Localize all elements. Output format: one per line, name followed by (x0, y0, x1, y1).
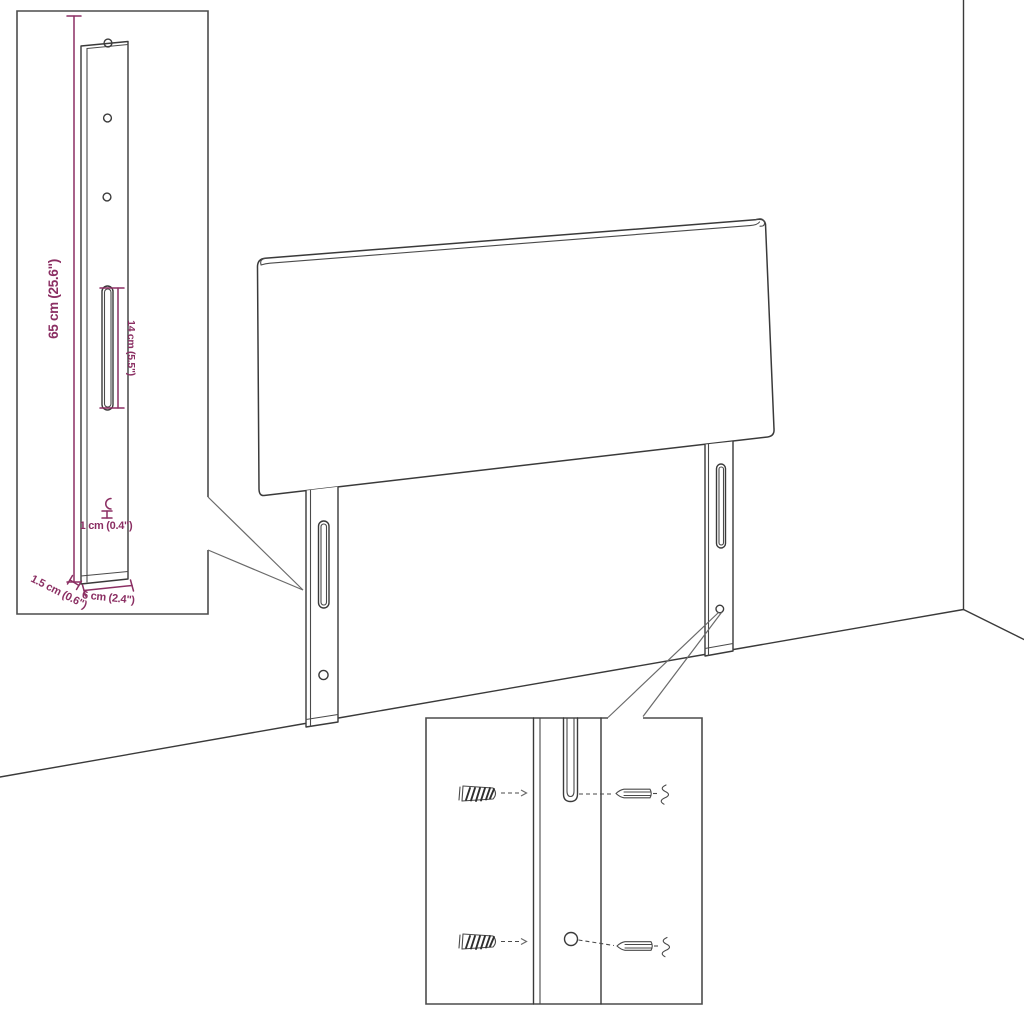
product-dimension-diagram: 65 cm (25.6") 14 cm (5.5") 1 cm (0.4") 1… (0, 0, 1024, 1024)
hook-thickness-label: 1 cm (0.4") (80, 520, 133, 532)
headboard-panel (257, 219, 774, 495)
inset-callout-upper (208, 497, 303, 590)
right-leg (705, 442, 733, 657)
bracket-height-label: 65 cm (25.6") (46, 259, 61, 339)
floor-line-right (734, 610, 964, 650)
floor-line-side (964, 610, 1024, 640)
mounting-detail-inset (426, 718, 702, 1004)
headboard-drawing (257, 219, 774, 727)
floor-line-left (0, 724, 305, 778)
inset-callout-lower (208, 550, 303, 590)
slot-length-label: 14 cm (5.5") (125, 320, 137, 376)
left-leg (306, 487, 338, 727)
